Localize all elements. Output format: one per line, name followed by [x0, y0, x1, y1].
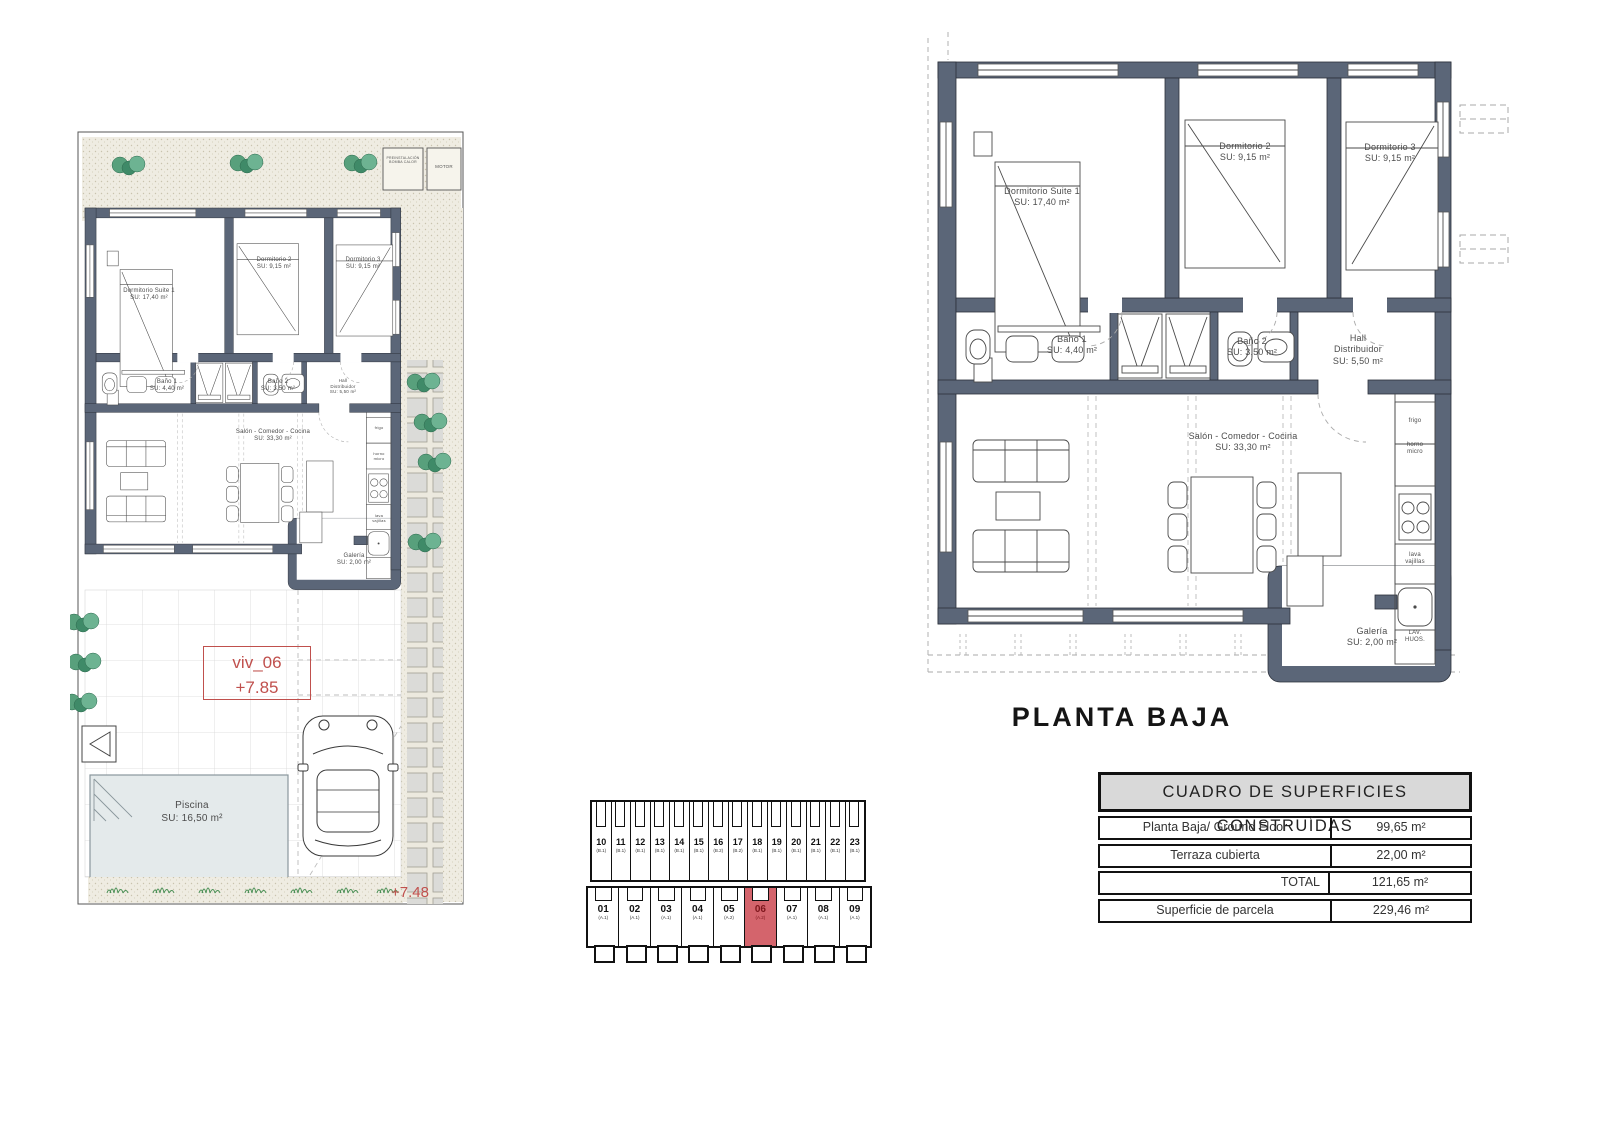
row-label: Planta Baja/ Ground Floor — [1100, 818, 1332, 838]
key-unit-19: 19(B.1) — [767, 802, 787, 880]
site-kitchen-frigo: frigo — [375, 426, 384, 431]
key-unit-05: 05(A.2) — [713, 888, 744, 946]
room-label-salon: Salón - Comedor - CocinaSU: 33,30 m² — [1189, 431, 1298, 454]
table-row: Terraza cubierta 22,00 m² — [1098, 844, 1472, 868]
site-room-bano2: Baño 2SU: 3,50 m² — [261, 379, 295, 393]
key-unit-06-highlighted: 06(A.2) — [744, 888, 775, 946]
kitchen-label-lavadero: LAV. HUOS. — [1403, 630, 1427, 644]
equipment-box-label: PREINSTALACIÓN BOMBA CALOR — [385, 156, 421, 165]
key-unit-08: 08(A.1) — [807, 888, 838, 946]
key-unit-21: 21(B.1) — [806, 802, 826, 880]
key-unit-12: 12(B.1) — [630, 802, 650, 880]
room-label-hall: Hall Distribuidor SU: 5,50 m² — [1325, 333, 1391, 367]
room-label-dorm2: Dormitorio 2SU: 9,15 m² — [1219, 141, 1270, 164]
room-label-galeria: GaleríaSU: 2,00 m² — [1347, 626, 1397, 649]
key-unit-02: 02(A.1) — [618, 888, 649, 946]
row-value: 99,65 m² — [1332, 818, 1470, 838]
floor-title: PLANTA BAJA — [1002, 702, 1242, 733]
site-room-dorm3: Dormitorio 3SU: 9,15 m² — [345, 257, 380, 271]
site-room-hall: Hall Distribuidor SU: 5,50 m² — [326, 378, 360, 395]
key-unit-03: 03(A.1) — [650, 888, 681, 946]
unit-level-tag: viv_06+7.85 — [203, 646, 311, 700]
table-row-total: TOTAL 121,65 m² — [1098, 871, 1472, 895]
kitchen-label-horno: horno micro — [1402, 442, 1428, 456]
kitchen-label-frigo: frigo — [1409, 418, 1422, 425]
key-unit-01: 01(A.1) — [588, 888, 618, 946]
key-unit-14: 14(B.1) — [669, 802, 689, 880]
kitchen-label-lavavajillas: lava vajillas — [1401, 552, 1429, 566]
room-label-suite: Dormitorio Suite 1SU: 17,40 m² — [1004, 186, 1080, 209]
room-label-bano1: Baño 1SU: 4,40 m² — [1047, 334, 1097, 357]
key-unit-18: 18(B.1) — [747, 802, 767, 880]
site-kitchen-horno: horno micro — [371, 452, 387, 461]
key-plan-upper-row: 10(B.1) 11(B.1) 12(B.1) 13(B.1) 14(B.1) … — [590, 800, 866, 882]
areas-table: CUADRO DE SUPERFICIES CONSTRUÍDAS Planta… — [1098, 772, 1472, 926]
key-unit-16: 16(B.2) — [708, 802, 728, 880]
key-unit-20: 20(B.1) — [786, 802, 806, 880]
site-plan-drawing — [70, 120, 470, 910]
site-kitchen-lavavajillas: lava vajillas — [371, 514, 388, 523]
site-room-bano1: Baño 1SU: 4,40 m² — [150, 379, 184, 393]
floor-plan-drawing — [900, 20, 1600, 720]
motor-box-label: MOTOR — [435, 164, 453, 170]
key-unit-13: 13(B.1) — [650, 802, 670, 880]
areas-table-title: CUADRO DE SUPERFICIES CONSTRUÍDAS — [1098, 772, 1472, 812]
key-unit-09: 09(A.1) — [839, 888, 870, 946]
room-label-bano2: Baño 2SU: 3,50 m² — [1227, 336, 1277, 359]
key-unit-15: 15(B.1) — [689, 802, 709, 880]
row-label: Superficie de parcela — [1100, 901, 1332, 921]
room-label-dorm3: Dormitorio 3SU: 9,15 m² — [1364, 142, 1415, 165]
row-label: TOTAL — [1100, 873, 1330, 893]
key-unit-22: 22(B.1) — [825, 802, 845, 880]
key-unit-04: 04(A.1) — [681, 888, 712, 946]
pool-label: PiscinaSU: 16,50 m² — [161, 800, 222, 825]
row-label: Terraza cubierta — [1100, 846, 1332, 866]
key-unit-11: 11(B.1) — [611, 802, 631, 880]
table-row: Planta Baja/ Ground Floor 99,65 m² — [1098, 816, 1472, 840]
site-room-galeria: GaleríaSU: 2,00 m² — [337, 553, 371, 567]
row-value: 229,46 m² — [1332, 901, 1470, 921]
site-room-suite: Dormitorio Suite 1SU: 17,40 m² — [123, 288, 175, 302]
plan-sheet: Dormitorio Suite 1SU: 17,40 m² Dormitori… — [0, 0, 1600, 1130]
key-unit-07: 07(A.1) — [776, 888, 807, 946]
site-room-salon: Salón - Comedor - CocinaSU: 33,30 m² — [236, 429, 310, 443]
table-row: Superficie de parcela 229,46 m² — [1098, 899, 1472, 923]
row-value: 121,65 m² — [1330, 873, 1470, 893]
site-room-dorm2: Dormitorio 2SU: 9,15 m² — [256, 257, 291, 271]
key-unit-17: 17(B.2) — [728, 802, 748, 880]
key-unit-10: 10(B.1) — [592, 802, 611, 880]
row-value: 22,00 m² — [1332, 846, 1470, 866]
key-plan-lower-row: 01(A.1) 02(A.1) 03(A.1) 04(A.1) 05(A.2) … — [586, 886, 872, 948]
entrance-level-tag: +7.48 — [370, 884, 450, 901]
key-unit-23: 23(B.1) — [845, 802, 865, 880]
